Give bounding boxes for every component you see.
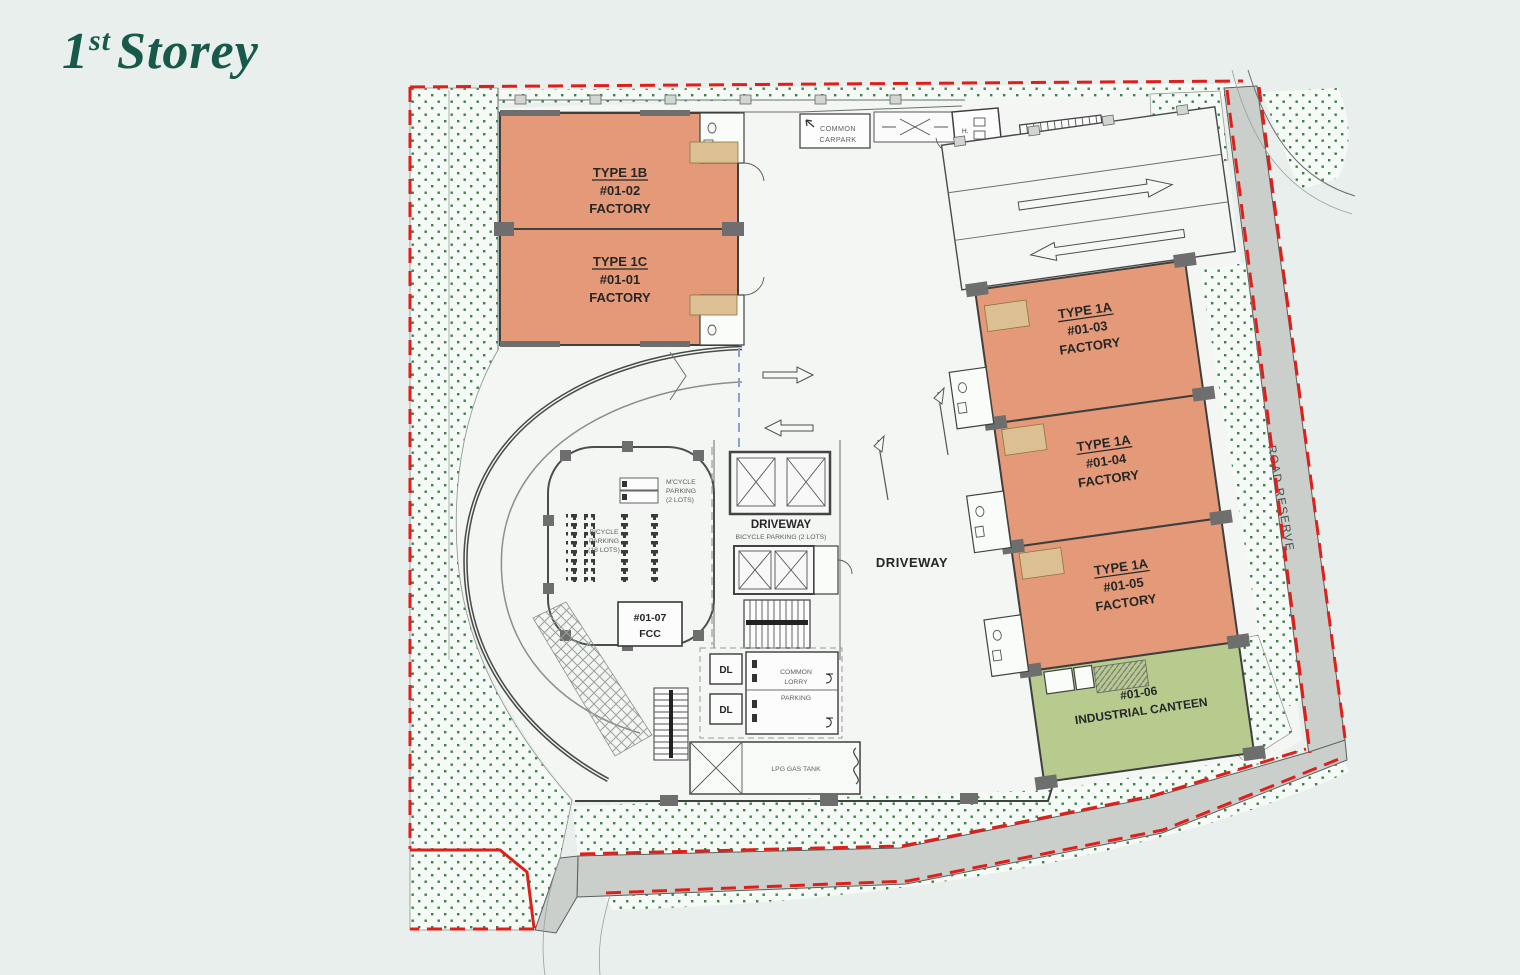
common-carpark-label: COMMON CARPARK [800,114,870,148]
mcycle-label-line2: PARKING [666,488,696,495]
unit-type: TYPE 1C [593,254,648,269]
service-box [1019,548,1064,580]
bike-rack [566,514,577,582]
bicycle-label-line2: PARKING [589,538,619,545]
lpg-room: LPG GAS TANK [690,742,860,794]
unit-block-left: TYPE 1B #01-02 FACTORY TYPE 1C #01-01 FA… [494,110,764,347]
bike-rack [620,514,631,582]
h-room-label: H. [962,128,969,135]
unit-use: FACTORY [589,201,651,216]
stair-bottom [654,688,688,760]
carlift-stall [874,112,956,142]
unit-number: #01-02 [600,183,640,198]
unit-number: #01-01 [600,272,640,287]
driveway-lift-label: DRIVEWAY [751,519,812,531]
lpg-label: LPG GAS TANK [771,766,821,773]
floor-plan-page: 1stStorey [0,0,1520,975]
lorry-bays [746,652,838,734]
service-box [1002,424,1047,456]
lift-bank-upper [730,452,830,514]
driveway-main-label: DRIVEWAY [876,555,948,570]
dl-label-1: DL [719,665,732,676]
canteen-toilet [1074,665,1095,689]
service-box [984,300,1029,332]
carpark-label-line1: COMMON [820,124,856,133]
fcc-room: #01-07 FCC [618,602,682,646]
service-box [690,142,738,163]
mcycle-label-line3: (2 LOTS) [666,497,694,504]
canteen-toilet [1044,668,1075,694]
unit-type: TYPE 1B [593,165,647,180]
lorry-label-line2: LORRY [784,679,808,686]
bicycle-parking-2lots-label: BICYCLE PARKING (2 LOTS) [736,534,827,541]
dl-label-2: DL [719,705,732,716]
landscape-farright-pocket [1262,88,1349,190]
service-box [690,295,737,315]
unit-use: FACTORY [589,290,651,305]
lift-bank-lower [734,546,852,594]
bicycle-label-line1: BICYCLE [589,529,619,536]
site-plan: COMMON CARPARK H. [0,0,1520,975]
fcc-unit-number: #01-07 [634,612,667,624]
entrance-curb-right [599,895,610,975]
bicycle-label-line3: (18 LOTS) [588,547,620,554]
lorry-label-line3: PARKING [781,695,811,702]
lorry-label-line1: COMMON [780,669,812,676]
mcycle-parking: M'CYCLE PARKING (2 LOTS) [620,478,696,504]
carpark-label-line2: CARPARK [819,135,856,144]
stair-core [744,600,810,648]
mcycle-label-line1: M'CYCLE [666,479,696,486]
fcc-unit-use: FCC [639,628,661,640]
bike-rack [648,514,659,582]
